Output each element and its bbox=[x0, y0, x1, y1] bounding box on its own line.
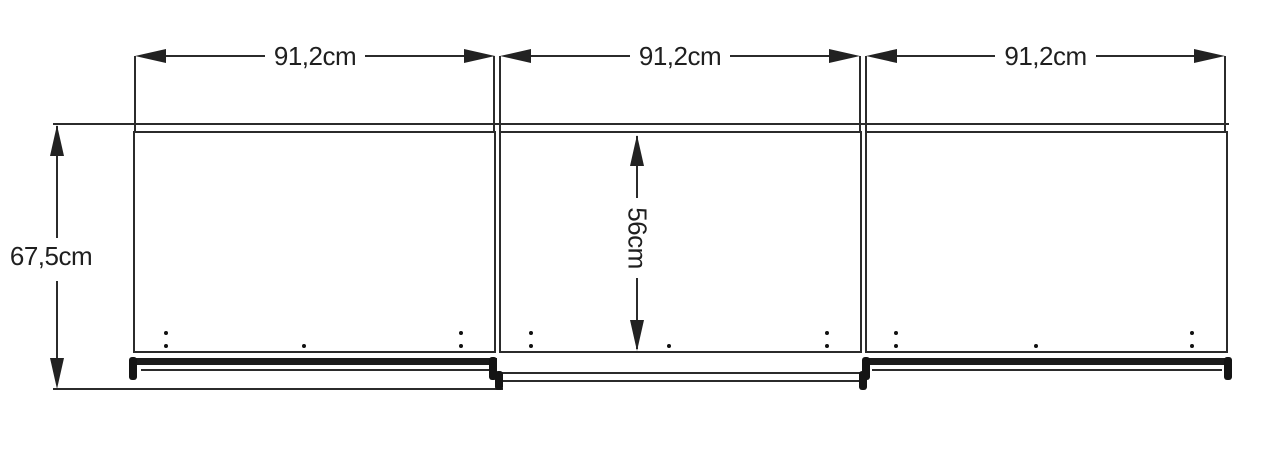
fitting-dot bbox=[1190, 344, 1194, 348]
extension-line bbox=[865, 56, 867, 132]
dim-arrow-down-icon bbox=[50, 358, 64, 389]
extension-line bbox=[134, 56, 136, 132]
door-panel-middle bbox=[499, 131, 862, 353]
dimension-diagram: 91,2cm 91,2cm 91,2cm 67,5cm 56cm bbox=[0, 0, 1280, 453]
track-end-cap bbox=[862, 357, 870, 380]
fitting-dot bbox=[1190, 331, 1194, 335]
extension-line bbox=[859, 56, 861, 132]
dim-arrow-left-icon bbox=[135, 49, 166, 63]
fitting-dot bbox=[1034, 344, 1038, 348]
fitting-dot bbox=[667, 344, 671, 348]
door-panel-left bbox=[133, 131, 496, 353]
extension-line bbox=[493, 56, 495, 132]
height-dimension-line bbox=[56, 281, 58, 359]
fitting-dot bbox=[894, 331, 898, 335]
floor-line bbox=[53, 388, 503, 390]
extension-line bbox=[499, 56, 501, 132]
dimension-line bbox=[531, 55, 630, 57]
dim-arrow-up-icon bbox=[50, 125, 64, 156]
extension-line bbox=[1224, 56, 1226, 132]
track-end-cap bbox=[495, 371, 503, 390]
dimension-label-door-2: 91,2cm bbox=[630, 41, 730, 71]
dim-arrow-up-icon bbox=[630, 135, 644, 166]
dim-arrow-left-icon bbox=[500, 49, 531, 63]
door-height-dimension-label: 56cm bbox=[622, 207, 653, 269]
dim-arrow-left-icon bbox=[866, 49, 897, 63]
fitting-dot bbox=[894, 344, 898, 348]
bottom-track-middle-bottom bbox=[502, 380, 862, 382]
bottom-track-middle-top bbox=[502, 372, 862, 374]
dim-arrow-right-icon bbox=[829, 49, 860, 63]
dimension-label-door-3: 91,2cm bbox=[995, 41, 1095, 71]
fitting-dot bbox=[529, 331, 533, 335]
dimension-line bbox=[897, 55, 995, 57]
fitting-dot bbox=[529, 344, 533, 348]
dimension-label-door-1: 91,2cm bbox=[265, 41, 365, 71]
dimension-line bbox=[730, 55, 829, 57]
bottom-track-right bbox=[864, 358, 1228, 365]
track-end-cap bbox=[1224, 357, 1232, 380]
track-end-cap bbox=[129, 357, 137, 380]
top-dimension-row-1: 91,2cm bbox=[135, 41, 495, 71]
top-dimension-row-2: 91,2cm bbox=[500, 41, 860, 71]
door-panel-right bbox=[865, 131, 1228, 353]
height-dimension-label: 67,5cm bbox=[4, 241, 98, 272]
fitting-dot bbox=[164, 331, 168, 335]
top-dimension-row-3: 91,2cm bbox=[866, 41, 1225, 71]
fitting-dot bbox=[825, 331, 829, 335]
dimension-line bbox=[166, 55, 265, 57]
dim-arrow-right-icon bbox=[464, 49, 495, 63]
fitting-dot bbox=[302, 344, 306, 348]
fitting-dot bbox=[164, 344, 168, 348]
fitting-dot bbox=[459, 344, 463, 348]
dimension-line bbox=[365, 55, 464, 57]
fitting-dot bbox=[459, 331, 463, 335]
fitting-dot bbox=[825, 344, 829, 348]
dim-arrow-down-icon bbox=[630, 320, 644, 351]
bottom-track-left-profile bbox=[141, 369, 491, 371]
dim-arrow-right-icon bbox=[1194, 49, 1225, 63]
bottom-track-right-profile bbox=[872, 369, 1222, 371]
dimension-line bbox=[1096, 55, 1194, 57]
carcass-top-line bbox=[53, 123, 1229, 125]
bottom-track-left bbox=[133, 358, 497, 365]
